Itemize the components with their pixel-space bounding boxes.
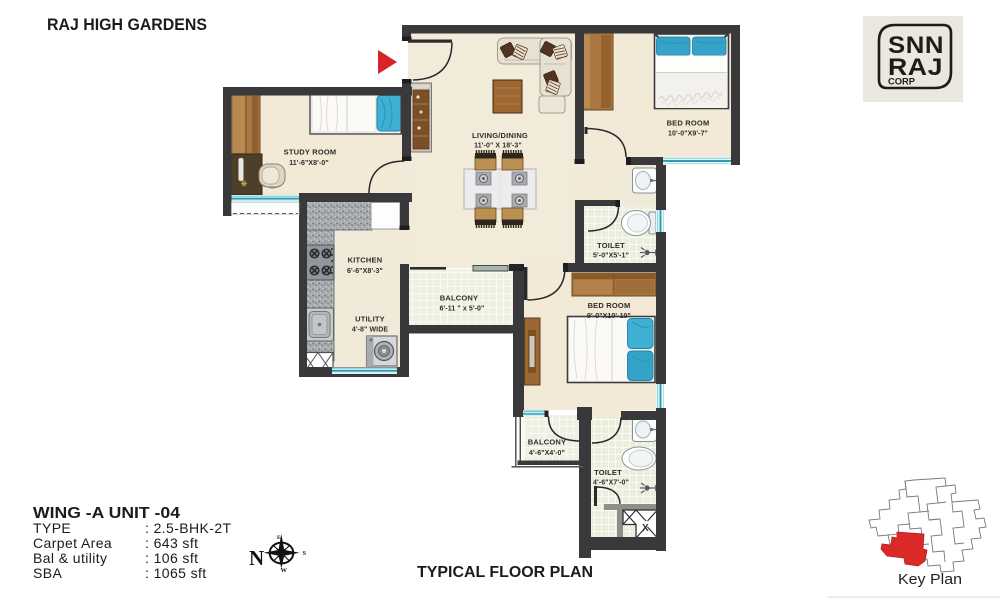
svg-text:BED ROOM: BED ROOM <box>588 301 631 310</box>
svg-text:STUDY ROOM: STUDY ROOM <box>284 148 337 157</box>
svg-text:: 106 sft: : 106 sft <box>145 550 198 566</box>
svg-text:TOILET: TOILET <box>594 468 622 477</box>
svg-text:Key Plan: Key Plan <box>898 571 962 588</box>
svg-text:SBA: SBA <box>33 565 62 581</box>
svg-text:TYPE: TYPE <box>33 520 71 536</box>
svg-text:S: S <box>303 550 307 557</box>
svg-text:6'-6"X8'-3": 6'-6"X8'-3" <box>347 268 383 275</box>
svg-text:: 2.5-BHK-2T: : 2.5-BHK-2T <box>145 520 232 536</box>
svg-text:W: W <box>281 567 288 574</box>
svg-text:9'-0"X10'-10": 9'-0"X10'-10" <box>587 313 631 320</box>
svg-text:E: E <box>277 535 281 541</box>
svg-text:10'-0"X9'-7": 10'-0"X9'-7" <box>668 131 708 138</box>
svg-text:4'-8" WIDE: 4'-8" WIDE <box>352 327 389 334</box>
svg-text:5'-0"X5'-1": 5'-0"X5'-1" <box>593 253 629 260</box>
svg-text:6'-11 " x 5'-0": 6'-11 " x 5'-0" <box>440 306 485 313</box>
svg-text:: 643 sft: : 643 sft <box>145 535 198 551</box>
svg-text:: 1065 sft: : 1065 sft <box>145 565 207 581</box>
svg-text:Bal & utility: Bal & utility <box>33 550 107 566</box>
svg-text:N: N <box>249 546 264 570</box>
svg-text:BED ROOM: BED ROOM <box>667 119 710 128</box>
svg-text:TOILET: TOILET <box>597 241 625 250</box>
svg-text:KITCHEN: KITCHEN <box>348 256 383 265</box>
svg-text:LIVING/DINING: LIVING/DINING <box>472 131 528 140</box>
svg-text:CORP: CORP <box>888 77 915 87</box>
svg-text:Carpet Area: Carpet Area <box>33 535 112 551</box>
svg-text:TYPICAL FLOOR PLAN: TYPICAL FLOOR PLAN <box>417 564 593 581</box>
svg-text:RAJ HIGH GARDENS: RAJ HIGH GARDENS <box>47 15 207 34</box>
svg-text:11'-0" X 18'-3": 11'-0" X 18'-3" <box>474 143 522 150</box>
svg-text:BALCONY: BALCONY <box>440 294 478 303</box>
svg-text:UTILITY: UTILITY <box>355 315 385 324</box>
svg-text:4'-6"X7'-0": 4'-6"X7'-0" <box>593 480 629 487</box>
svg-text:BALCONY: BALCONY <box>528 438 566 447</box>
svg-text:X: X <box>642 523 649 534</box>
svg-text:11'-6"X8'-0": 11'-6"X8'-0" <box>289 160 329 167</box>
svg-text:4'-6"X4'-0": 4'-6"X4'-0" <box>529 450 565 457</box>
